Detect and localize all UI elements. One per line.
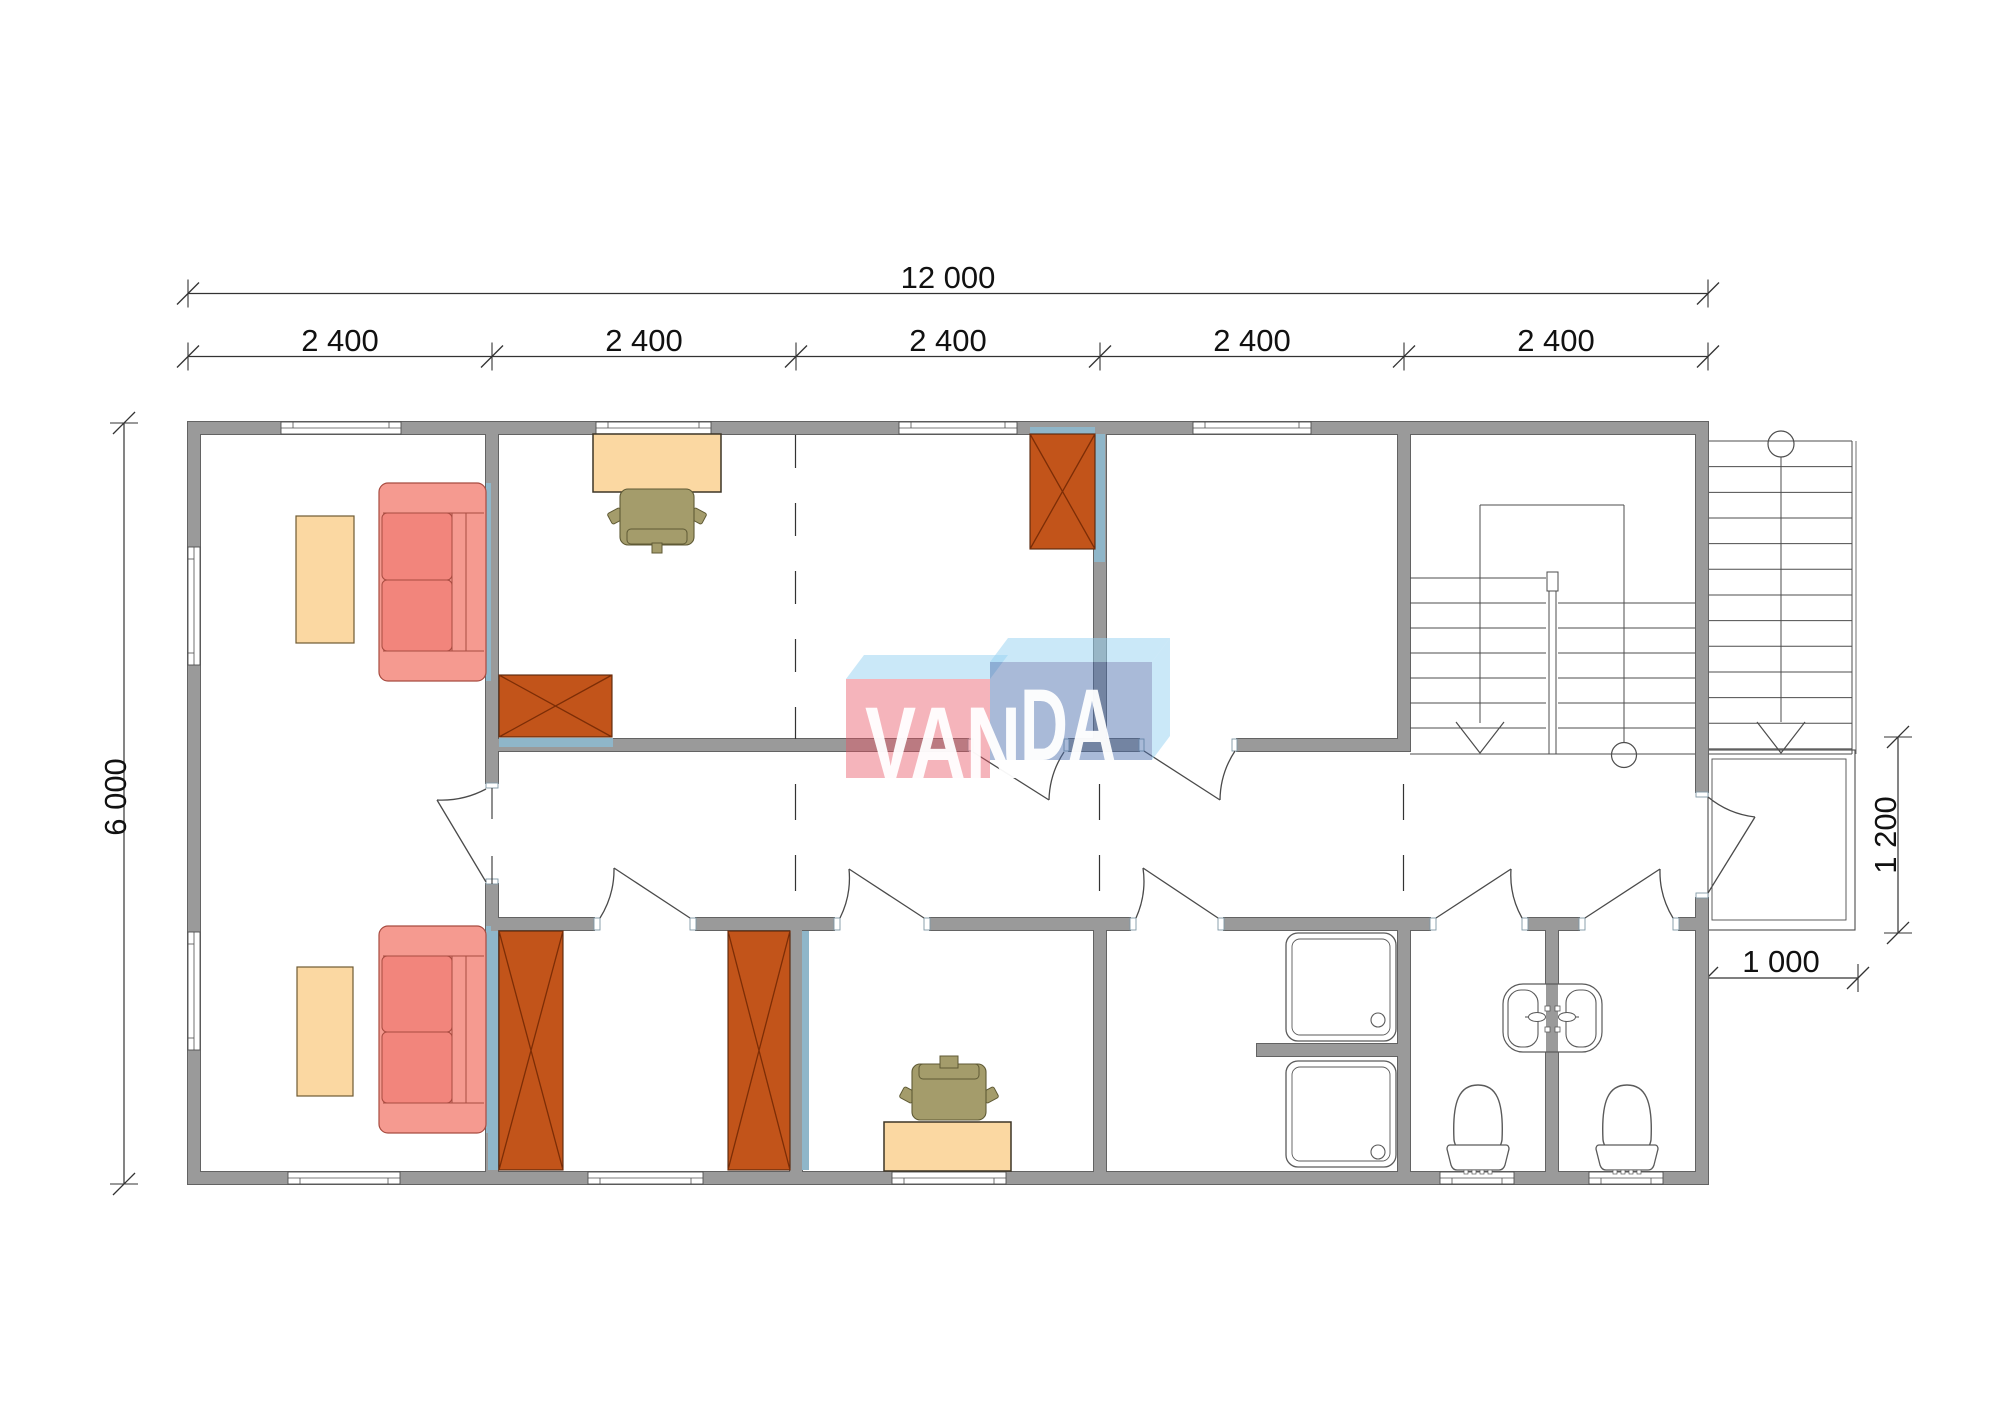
- svg-text:2 400: 2 400: [605, 323, 683, 358]
- svg-text:2 400: 2 400: [1213, 323, 1291, 358]
- svg-text:2 400: 2 400: [909, 323, 987, 358]
- svg-text:DA: DA: [1020, 668, 1116, 782]
- svg-text:12 000: 12 000: [901, 260, 996, 295]
- svg-text:1 200: 1 200: [1868, 796, 1903, 874]
- svg-text:2 400: 2 400: [301, 323, 379, 358]
- svg-text:2 400: 2 400: [1517, 323, 1595, 358]
- svg-text:1 000: 1 000: [1742, 944, 1820, 979]
- svg-text:VAN: VAN: [865, 686, 1021, 800]
- svg-text:6 000: 6 000: [98, 758, 133, 836]
